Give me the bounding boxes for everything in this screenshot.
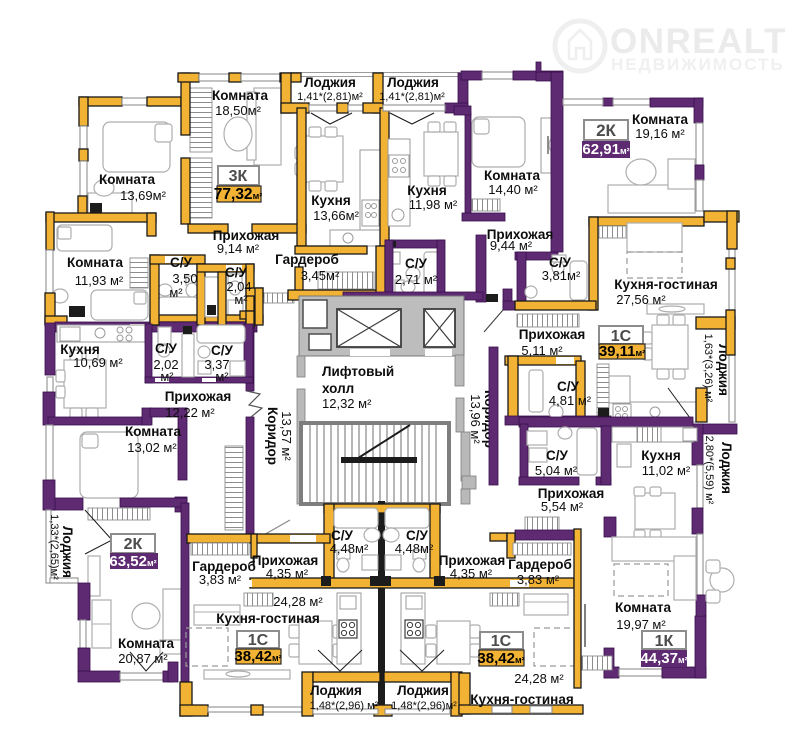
svg-text:1С: 1С xyxy=(491,633,512,650)
svg-text:9,14 м²: 9,14 м² xyxy=(217,241,260,256)
svg-text:1,41*(2,81)м²: 1,41*(2,81)м² xyxy=(379,91,445,103)
svg-text:4,35 м²: 4,35 м² xyxy=(266,566,309,581)
svg-text:11,98 м²: 11,98 м² xyxy=(409,197,458,212)
svg-text:С/У: С/У xyxy=(211,343,234,358)
svg-text:27,56 м²: 27,56 м² xyxy=(616,292,666,307)
svg-text:Гардероб: Гардероб xyxy=(508,557,572,572)
svg-text:13,96 м²: 13,96 м² xyxy=(468,394,483,444)
svg-text:Комната: Комната xyxy=(212,88,269,103)
svg-text:24,28 м²: 24,28 м² xyxy=(514,671,564,686)
svg-text:м²: м² xyxy=(215,369,229,384)
svg-text:Комната: Комната xyxy=(632,112,689,127)
svg-text:19,16 м²: 19,16 м² xyxy=(635,126,685,141)
svg-text:11,93 м²: 11,93 м² xyxy=(75,273,124,288)
svg-text:3К: 3К xyxy=(229,168,248,185)
svg-text:4,48м²: 4,48м² xyxy=(395,541,434,556)
svg-text:13,69м²: 13,69м² xyxy=(120,188,166,203)
svg-text:1,63*(3,26) м²: 1,63*(3,26) м² xyxy=(702,334,714,403)
svg-text:С/У: С/У xyxy=(557,379,580,394)
svg-text:Лифтовый: Лифтовый xyxy=(322,364,394,379)
svg-text:1,41*(2,81)м²: 1,41*(2,81)м² xyxy=(297,91,363,103)
svg-text:м²: м² xyxy=(169,285,183,300)
svg-text:С/У: С/У xyxy=(155,341,178,356)
svg-text:2,80*(5,59) м²: 2,80*(5,59) м² xyxy=(703,436,715,505)
svg-text:24,28 м²: 24,28 м² xyxy=(273,594,323,609)
svg-text:2К: 2К xyxy=(124,536,143,553)
svg-text:Лоджия: Лоджия xyxy=(387,75,439,90)
svg-text:Гардероб: Гардероб xyxy=(275,252,339,267)
svg-text:1,48*(2,96)м²: 1,48*(2,96)м² xyxy=(391,700,457,712)
svg-text:14,40 м²: 14,40 м² xyxy=(488,182,538,197)
svg-text:1С: 1С xyxy=(248,632,269,649)
svg-text:20,87 м²: 20,87 м² xyxy=(118,651,168,666)
svg-text:холл: холл xyxy=(322,381,354,396)
svg-text:1,48*(2,96) м²: 1,48*(2,96) м² xyxy=(310,700,379,712)
svg-text:3,83 м²: 3,83 м² xyxy=(517,572,560,587)
svg-text:Коридор: Коридор xyxy=(265,407,280,465)
svg-text:Лоджия: Лоджия xyxy=(310,683,362,698)
svg-text:12,22 м²: 12,22 м² xyxy=(165,405,215,420)
svg-text:м²: м² xyxy=(160,369,174,384)
svg-text:18,50м²: 18,50м² xyxy=(215,103,261,118)
svg-text:9,44 м²: 9,44 м² xyxy=(490,238,533,253)
svg-text:2,71 м²: 2,71 м² xyxy=(395,272,438,287)
svg-text:Кухня-гостиная: Кухня-гостиная xyxy=(614,277,717,292)
svg-text:5,11 м²: 5,11 м² xyxy=(521,343,563,358)
svg-text:НЕДВИЖИМОСТЬ: НЕДВИЖИМОСТЬ xyxy=(611,55,785,74)
svg-text:5,04 м²: 5,04 м² xyxy=(535,463,578,478)
svg-text:Лоджия: Лоджия xyxy=(397,683,449,698)
svg-text:13,02 м²: 13,02 м² xyxy=(127,440,177,455)
svg-text:1К: 1К xyxy=(655,633,674,650)
svg-text:12,32 м²: 12,32 м² xyxy=(322,396,372,411)
svg-text:3,45м²: 3,45м² xyxy=(301,268,340,283)
svg-text:Прихожая: Прихожая xyxy=(519,327,586,342)
svg-text:2К: 2К xyxy=(596,121,616,140)
svg-text:13,57 м²: 13,57 м² xyxy=(279,411,294,461)
svg-text:13,66м²: 13,66м² xyxy=(313,208,359,223)
svg-text:3,83 м²: 3,83 м² xyxy=(199,572,242,587)
svg-text:Кухня-гостиная: Кухня-гостиная xyxy=(216,611,319,626)
svg-text:С/У: С/У xyxy=(225,265,248,280)
svg-text:м²: м² xyxy=(234,292,248,307)
svg-text:3,81м²: 3,81м² xyxy=(542,268,581,283)
svg-text:4,81 м²: 4,81 м² xyxy=(549,393,592,408)
svg-text:4,48м²: 4,48м² xyxy=(330,541,369,556)
svg-text:Кухня-гостиная: Кухня-гостиная xyxy=(470,692,573,707)
svg-text:10,69 м²: 10,69 м² xyxy=(73,355,123,370)
svg-text:Комната: Комната xyxy=(67,255,124,270)
svg-text:1,33*(2,65)м²: 1,33*(2,65)м² xyxy=(48,514,60,580)
svg-text:С/У: С/У xyxy=(405,256,428,271)
svg-text:Кухня: Кухня xyxy=(407,183,446,198)
svg-text:5,54 м²: 5,54 м² xyxy=(541,499,584,514)
svg-text:Комната: Комната xyxy=(99,172,156,187)
svg-text:Лоджия: Лоджия xyxy=(719,442,734,494)
svg-text:Лоджия: Лоджия xyxy=(60,526,75,578)
svg-text:19,97 м²: 19,97 м² xyxy=(616,617,666,632)
svg-text:3,50: 3,50 xyxy=(172,271,197,286)
svg-text:Кухня: Кухня xyxy=(311,193,350,208)
svg-text:Комната: Комната xyxy=(615,600,672,615)
svg-text:Кухня: Кухня xyxy=(641,448,680,463)
svg-text:С/У: С/У xyxy=(546,448,569,463)
svg-text:Прихожая: Прихожая xyxy=(165,389,232,404)
svg-text:11,02 м²: 11,02 м² xyxy=(642,463,691,478)
svg-text:С/У: С/У xyxy=(170,255,193,270)
svg-text:Комната: Комната xyxy=(118,636,175,651)
svg-text:4,35 м²: 4,35 м² xyxy=(450,566,493,581)
svg-text:Комната: Комната xyxy=(484,168,541,183)
svg-text:Лоджия: Лоджия xyxy=(304,75,356,90)
svg-text:Комната: Комната xyxy=(125,424,182,439)
